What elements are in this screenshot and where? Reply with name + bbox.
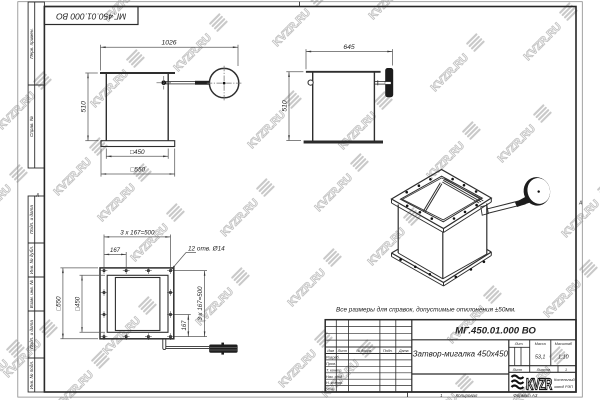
svg-text:3 x 167=500: 3 x 167=500 [197, 286, 204, 321]
svg-text:Разраб.: Разраб. [326, 356, 340, 360]
svg-text:Инв. № дубл.: Инв. № дубл. [29, 246, 34, 274]
svg-text:Взам. инв. №: Взам. инв. № [29, 280, 34, 308]
svg-text:Утв.: Утв. [326, 388, 335, 392]
svg-text:Нач. отд: Нач. отд [326, 375, 342, 379]
svg-text:Масштаб: Масштаб [555, 342, 573, 346]
svg-text:Справ. №: Справ. № [29, 116, 34, 137]
svg-text:Подп.: Подп. [383, 349, 393, 353]
svg-text:3 x 167=500: 3 x 167=500 [120, 229, 155, 236]
svg-text:Все размеры для справок, допус: Все размеры для справок, допустимые откл… [336, 306, 516, 314]
svg-text:Формат А3: Формат А3 [513, 393, 538, 398]
svg-text:МГ.450.01.000 ВО: МГ.450.01.000 ВО [455, 326, 536, 337]
svg-text:Копировал: Копировал [456, 393, 478, 398]
svg-text:□450: □450 [75, 296, 82, 311]
svg-text:Н. контр.: Н. контр. [326, 381, 343, 385]
svg-text:167: 167 [110, 248, 121, 254]
svg-text:Т. контр.: Т. контр. [326, 368, 342, 372]
svg-text:1: 1 [565, 368, 567, 372]
svg-text:Изм: Изм [327, 349, 334, 353]
svg-text:1:10: 1:10 [558, 355, 569, 361]
svg-text:□550: □550 [55, 296, 62, 311]
svg-text:А: А [578, 201, 583, 207]
svg-text:□450: □450 [130, 149, 145, 156]
svg-text:53,1: 53,1 [535, 355, 546, 361]
svg-text:645: 645 [343, 44, 355, 51]
svg-text:Подп. и дата: Подп. и дата [29, 205, 34, 234]
svg-text:№ докум.: № докум. [356, 349, 372, 353]
svg-text:KVZR: KVZR [526, 376, 553, 394]
svg-text:Инв. № подл.: Инв. № подл. [29, 361, 34, 390]
svg-text:Листов: Листов [536, 368, 551, 372]
svg-text:1026: 1026 [161, 40, 176, 47]
svg-text:Перв. примен.: Перв. примен. [29, 28, 34, 59]
svg-text:Дата: Дата [398, 349, 408, 353]
svg-text:□550: □550 [131, 167, 146, 174]
svg-text:Лист: Лист [337, 349, 347, 353]
svg-text:Пров.: Пров. [326, 362, 336, 366]
svg-text:завод РЭП: завод РЭП [553, 385, 573, 389]
svg-text:167: 167 [182, 320, 188, 331]
svg-text:МГ.450.01.000 ВО: МГ.450.01.000 ВО [56, 11, 127, 21]
svg-text:12 отв. Ø14: 12 отв. Ø14 [188, 245, 225, 252]
svg-text:Лист: Лист [512, 368, 523, 372]
svg-text:Затвор-мигалка 450х450: Затвор-мигалка 450х450 [413, 350, 509, 359]
svg-text:Лит.: Лит. [514, 342, 524, 346]
svg-text:Масса: Масса [535, 342, 546, 346]
svg-text:510: 510 [282, 100, 289, 112]
svg-text:510: 510 [81, 101, 88, 113]
svg-text:Котельный: Котельный [554, 378, 576, 382]
svg-text:Подп. и дата: Подп. и дата [29, 320, 34, 349]
